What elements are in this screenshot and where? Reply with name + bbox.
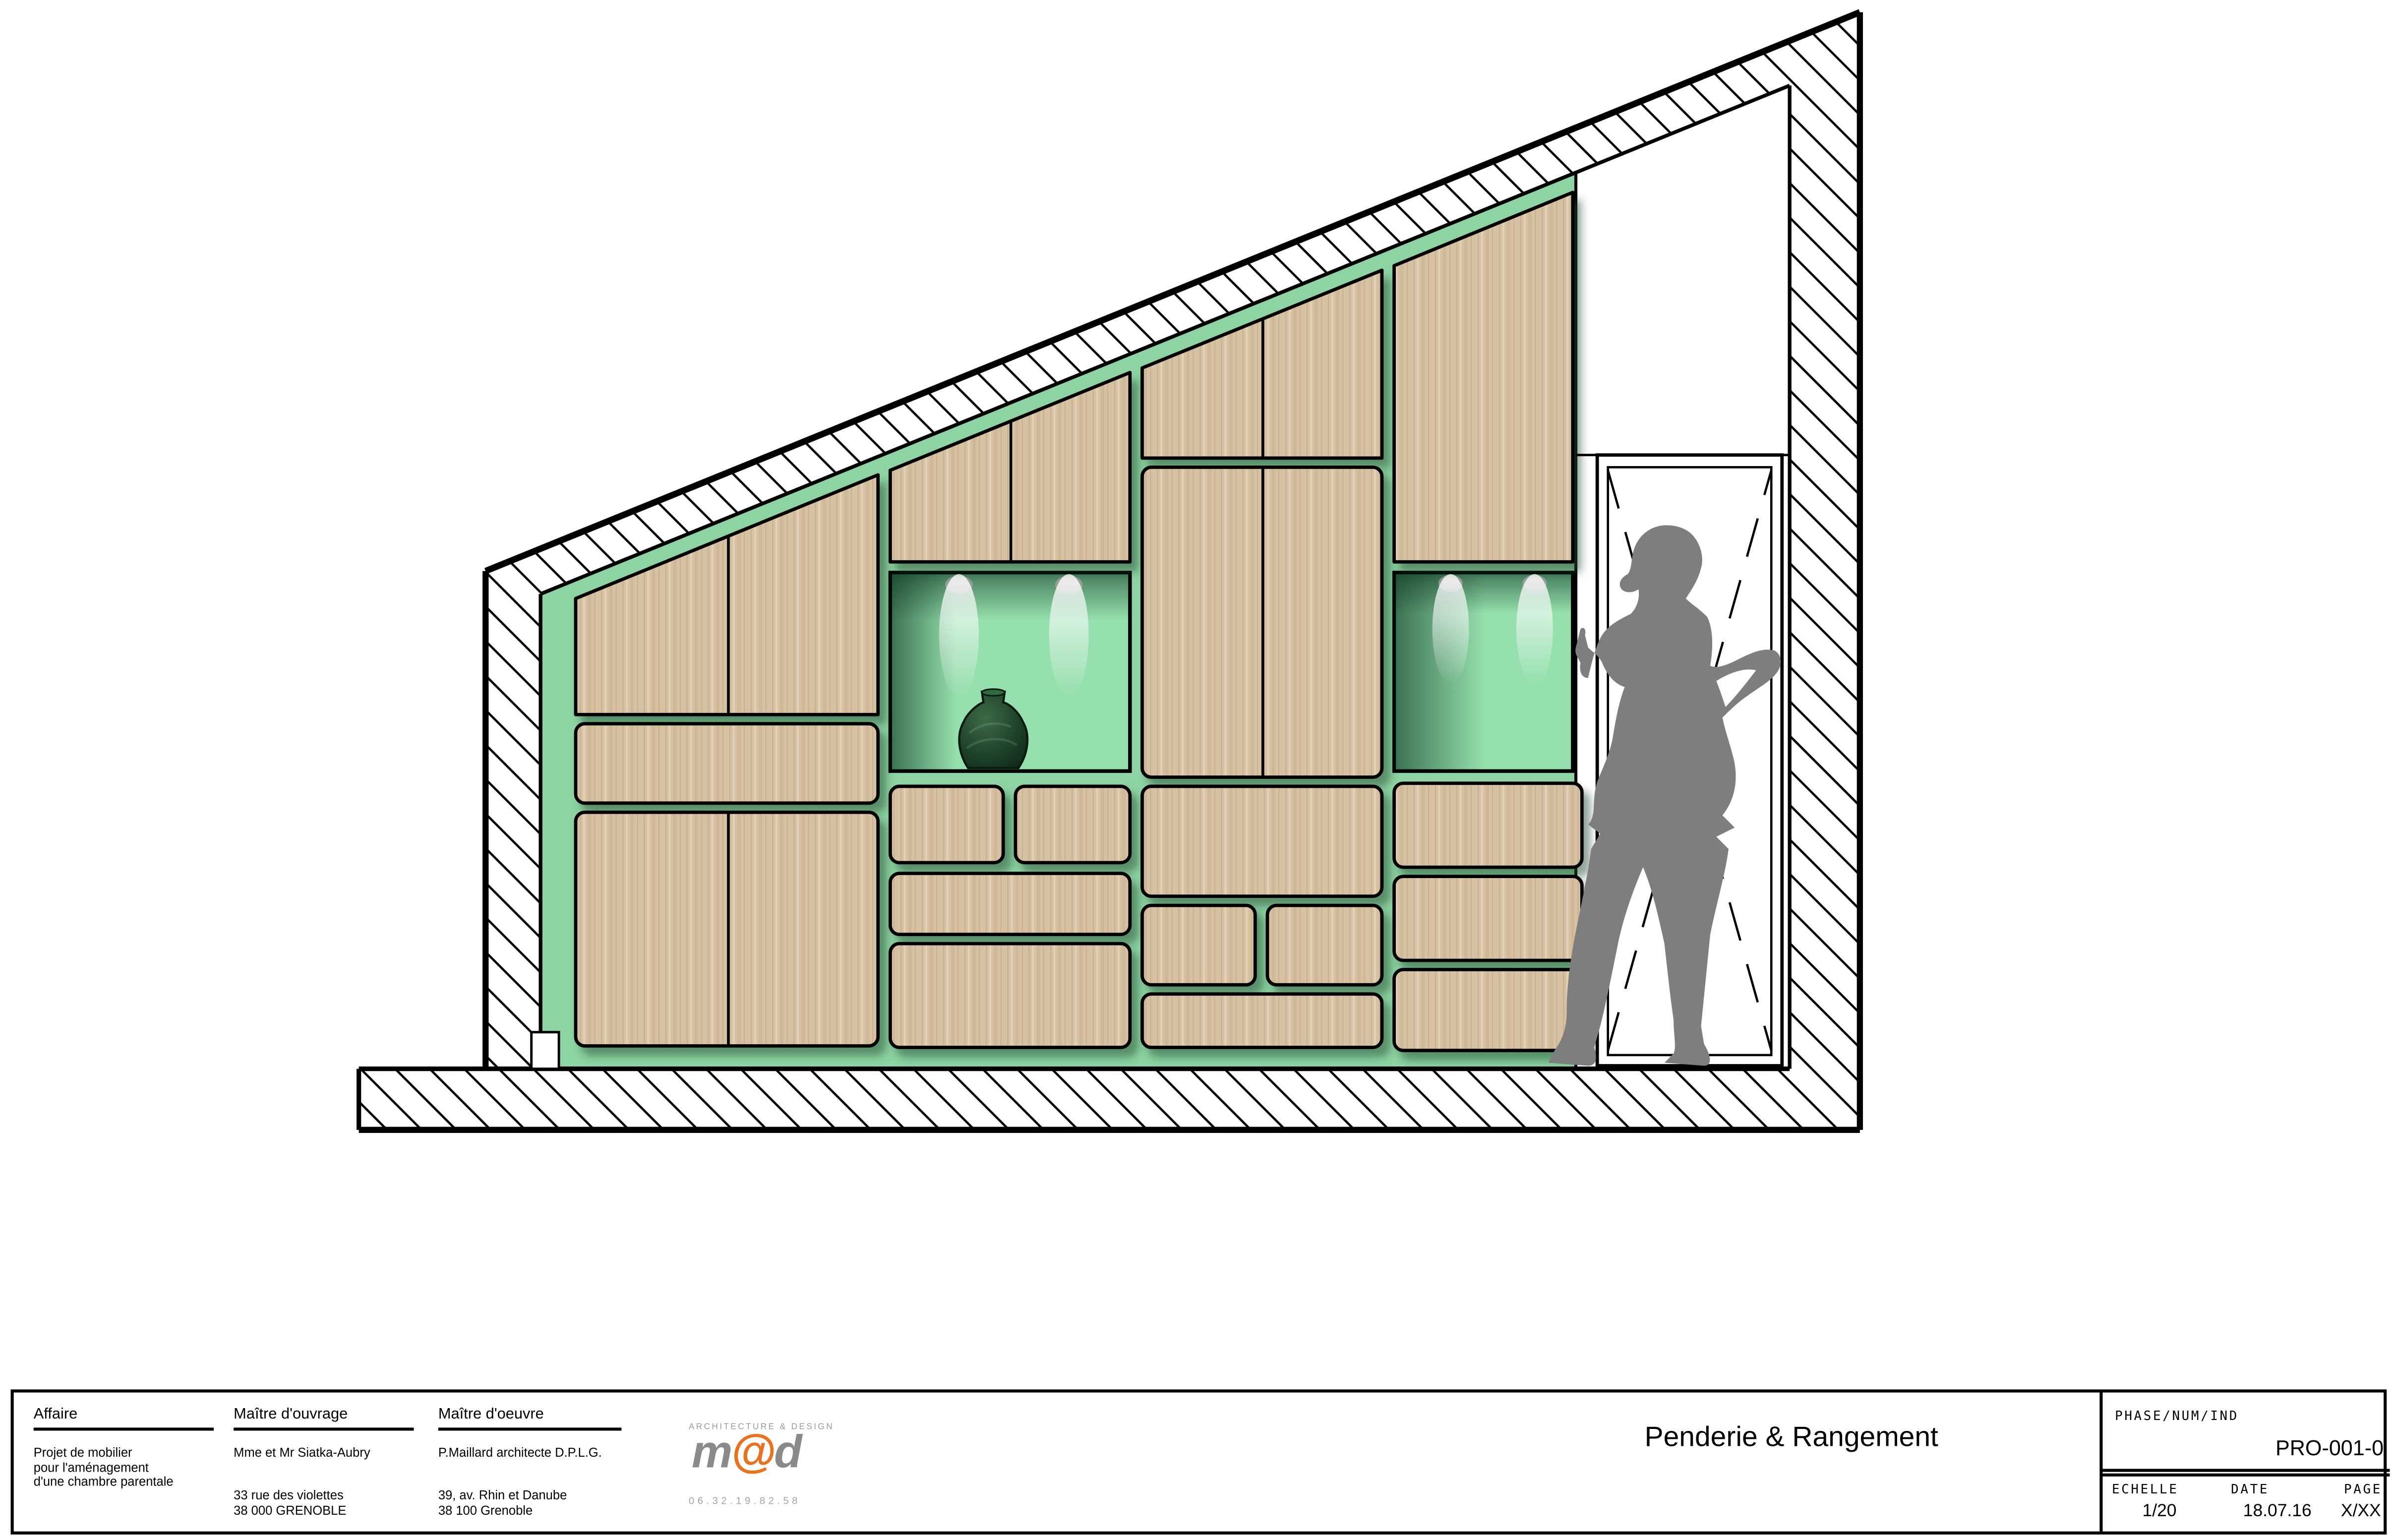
logo: ARCHITECTURE & DESIGN m@d 06.32.19.82.58 <box>689 1393 841 1532</box>
logo-letter-m: m <box>692 1427 731 1478</box>
maitre-oeuvre-name: P.Maillard architecte D.P.L.G. <box>438 1446 602 1461</box>
cabinet-panel <box>576 812 878 1046</box>
address-line: 33 rue des violettes <box>234 1489 346 1504</box>
niche-light-right <box>1049 574 1089 696</box>
phase-value: PRO-001-0 <box>2275 1435 2384 1460</box>
page-label: PAGE <box>2344 1481 2382 1496</box>
address-line: 39, av. Rhin et Danube <box>438 1489 567 1504</box>
echelle-label: ECHELLE <box>2112 1481 2179 1496</box>
drawer-front <box>1142 786 1381 896</box>
echelle-value: 1/20 <box>2143 1502 2177 1521</box>
drawer-front <box>1267 905 1382 985</box>
address-line: 38 100 Grenoble <box>438 1503 567 1518</box>
elevation-drawing <box>0 0 2394 1539</box>
maitre-oeuvre-address: 39, av. Rhin et Danube 38 100 Grenoble <box>438 1489 567 1518</box>
logo-mad: m@d <box>692 1434 801 1474</box>
maitre-ouvrage-section: Maître d'ouvrage Mme et Mr Siatka-Aubry … <box>234 1393 426 1532</box>
logo-phone: 06.32.19.82.58 <box>689 1496 801 1507</box>
drawer-front <box>1142 994 1381 1048</box>
phase-label: PHASE/NUM/IND <box>2115 1408 2239 1423</box>
maitre-ouvrage-name: Mme et Mr Siatka-Aubry <box>234 1446 370 1461</box>
affaire-description: Projet de mobilier pour l'aménagement d'… <box>34 1446 174 1490</box>
drawer-front <box>1016 786 1130 863</box>
drawing-sheet: Affaire Projet de mobilier pour l'aménag… <box>0 0 2394 1539</box>
wardrobe-doors <box>1142 467 1381 777</box>
drawer-front <box>890 873 1130 934</box>
maitre-oeuvre-section: Maître d'oeuvre P.Maillard architecte D.… <box>438 1393 637 1532</box>
maitre-ouvrage-label: Maître d'ouvrage <box>234 1406 414 1430</box>
drawer-front <box>1142 905 1255 985</box>
phase-section: PHASE/NUM/IND PRO-001-0 ECHELLE DATE PAG… <box>2102 1393 2390 1532</box>
affaire-label: Affaire <box>34 1406 214 1430</box>
affaire-line: pour l'aménagement <box>34 1461 174 1476</box>
affaire-line: Projet de mobilier <box>34 1446 174 1461</box>
left-wall-band <box>485 571 540 1069</box>
logo-at-icon: @ <box>731 1427 774 1478</box>
niche-light-left <box>939 574 979 696</box>
maitre-ouvrage-address: 33 rue des violettes 38 000 GRENOBLE <box>234 1489 346 1518</box>
niche-light-right <box>1516 574 1553 684</box>
logo-letter-d: d <box>774 1427 800 1478</box>
display-niche <box>890 573 1130 771</box>
divider-line <box>2102 1469 2390 1471</box>
affaire-line: d'une chambre parentale <box>34 1475 174 1490</box>
drawing-title: Penderie & Rangement <box>1645 1420 1938 1454</box>
plinth-detail <box>532 1032 559 1069</box>
drawer-front <box>1394 969 1582 1050</box>
maitre-oeuvre-label: Maître d'oeuvre <box>438 1406 622 1430</box>
date-label: DATE <box>2231 1481 2269 1496</box>
date-value: 18.07.16 <box>2243 1502 2312 1521</box>
lighted-niche-right <box>1394 573 1573 771</box>
divider-line <box>2102 1474 2390 1476</box>
niche-light-left <box>1433 574 1469 684</box>
drawer-front <box>576 724 878 803</box>
floor-band <box>359 1069 1860 1130</box>
drawer-front <box>1394 877 1582 960</box>
title-block: Affaire Projet de mobilier pour l'aménag… <box>11 1389 2387 1535</box>
drawer-front <box>1394 783 1582 867</box>
page-value: X/XX <box>2341 1502 2381 1521</box>
affaire-section: Affaire Projet de mobilier pour l'aménag… <box>34 1393 232 1532</box>
drawer-front <box>890 786 1003 863</box>
drawer-front <box>890 944 1130 1047</box>
right-wall-band <box>1790 12 1860 1069</box>
address-line: 38 000 GRENOBLE <box>234 1503 346 1518</box>
